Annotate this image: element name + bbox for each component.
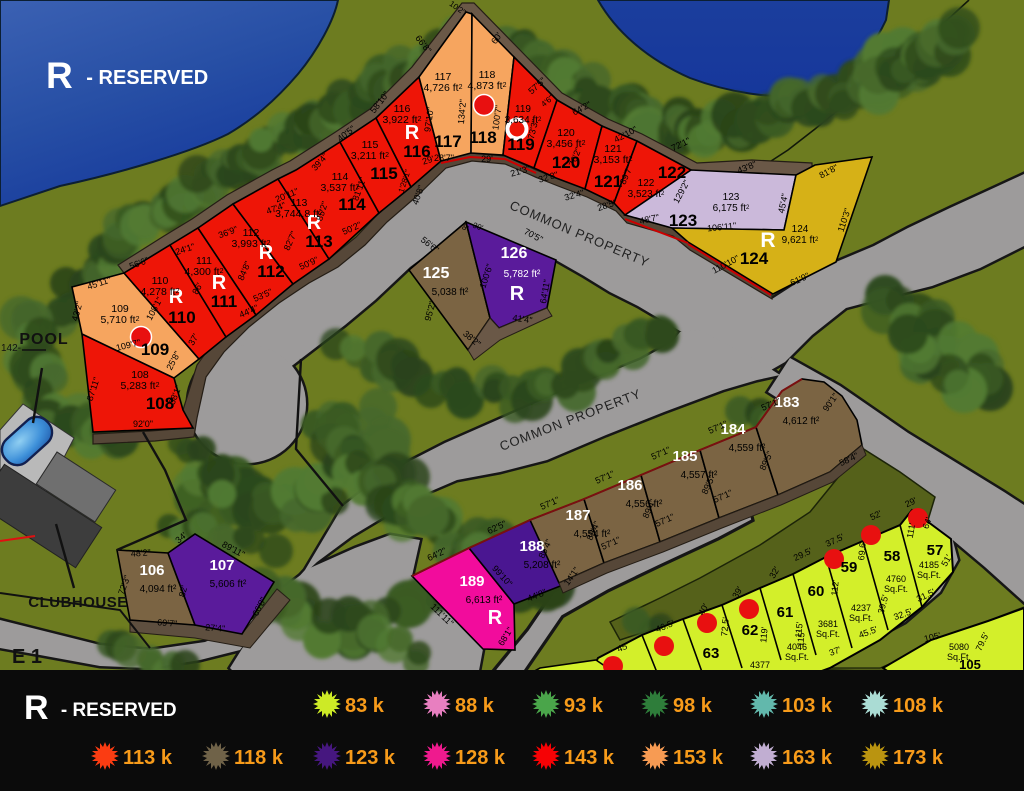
svg-text:117: 117 bbox=[434, 132, 461, 151]
svg-text:142-: 142- bbox=[1, 343, 21, 354]
svg-text:119: 119 bbox=[515, 104, 531, 115]
svg-text:R: R bbox=[488, 607, 503, 629]
svg-text:27'4": 27'4" bbox=[205, 622, 226, 633]
svg-text:5,208 ft²: 5,208 ft² bbox=[524, 560, 561, 571]
svg-text:124: 124 bbox=[740, 249, 769, 268]
svg-text:3,523 ft2: 3,523 ft2 bbox=[628, 189, 665, 200]
svg-text:4185: 4185 bbox=[919, 560, 939, 570]
svg-text:57: 57 bbox=[927, 542, 944, 559]
svg-text:4377: 4377 bbox=[750, 660, 770, 670]
svg-text:3,993 ft2: 3,993 ft2 bbox=[232, 238, 271, 250]
svg-text:92'0": 92'0" bbox=[133, 419, 153, 429]
svg-text:188: 188 bbox=[519, 538, 544, 555]
svg-text:5,283 ft2: 5,283 ft2 bbox=[121, 380, 160, 392]
svg-text:58: 58 bbox=[884, 548, 901, 565]
svg-text:124: 124 bbox=[792, 224, 809, 235]
svg-text:105: 105 bbox=[959, 657, 981, 672]
svg-text:119': 119' bbox=[758, 626, 769, 643]
svg-text:Sq.Ft.: Sq.Ft. bbox=[816, 629, 840, 639]
svg-text:112': 112' bbox=[829, 579, 840, 596]
svg-text:R: R bbox=[510, 283, 525, 305]
svg-text:5,038 ft²: 5,038 ft² bbox=[432, 287, 469, 298]
svg-text:98 k: 98 k bbox=[673, 695, 713, 717]
svg-text:4,094 ft²: 4,094 ft² bbox=[140, 584, 177, 595]
svg-text:103 k: 103 k bbox=[782, 695, 833, 717]
svg-text:72.5': 72.5' bbox=[719, 616, 731, 636]
svg-text:69.6': 69.6' bbox=[856, 540, 868, 560]
svg-text:125: 125 bbox=[423, 265, 450, 282]
svg-text:123 k: 123 k bbox=[345, 747, 396, 769]
svg-text:59: 59 bbox=[841, 559, 858, 576]
svg-text:4237: 4237 bbox=[851, 603, 871, 613]
svg-text:118 k: 118 k bbox=[234, 747, 284, 769]
svg-text:29': 29' bbox=[481, 154, 493, 164]
svg-text:173 k: 173 k bbox=[893, 747, 944, 769]
svg-text:115': 115' bbox=[793, 621, 804, 638]
svg-text:3,922 ft2: 3,922 ft2 bbox=[383, 114, 422, 126]
svg-text:83 k: 83 k bbox=[345, 695, 385, 717]
svg-text:187: 187 bbox=[565, 507, 590, 524]
svg-text:4,278 ft2: 4,278 ft2 bbox=[141, 286, 180, 298]
svg-text:153 k: 153 k bbox=[673, 747, 724, 769]
svg-text:4,300 ft2: 4,300 ft2 bbox=[185, 266, 224, 278]
svg-text:28'7": 28'7" bbox=[434, 153, 454, 163]
svg-text:Sq.Ft.: Sq.Ft. bbox=[785, 652, 809, 662]
svg-text:4,612 ft²: 4,612 ft² bbox=[783, 416, 820, 427]
svg-text:63: 63 bbox=[703, 645, 720, 662]
svg-text:118: 118 bbox=[469, 128, 496, 147]
svg-text:185: 185 bbox=[672, 448, 697, 465]
svg-text:5,782 ft²: 5,782 ft² bbox=[504, 269, 541, 280]
svg-text:110: 110 bbox=[168, 308, 195, 327]
svg-text:88 k: 88 k bbox=[455, 695, 495, 717]
svg-text:4,559 ft²: 4,559 ft² bbox=[729, 443, 766, 454]
svg-text:5,606 ft²: 5,606 ft² bbox=[210, 579, 247, 590]
svg-text:93 k: 93 k bbox=[564, 695, 604, 717]
svg-text:113: 113 bbox=[305, 232, 332, 251]
svg-text:123: 123 bbox=[669, 211, 697, 230]
svg-text:111: 111 bbox=[211, 292, 238, 311]
svg-text:115: 115 bbox=[370, 164, 397, 183]
svg-text:POOL: POOL bbox=[19, 331, 68, 348]
svg-text:E 1: E 1 bbox=[12, 646, 42, 668]
svg-text:6,175 ft2: 6,175 ft2 bbox=[713, 203, 750, 214]
svg-text:122: 122 bbox=[638, 178, 655, 189]
svg-text:143 k: 143 k bbox=[564, 747, 615, 769]
svg-text:186: 186 bbox=[617, 477, 642, 494]
svg-text:5080: 5080 bbox=[949, 642, 969, 652]
svg-text:113 k: 113 k bbox=[123, 747, 173, 769]
svg-text:60: 60 bbox=[808, 583, 825, 600]
svg-text:69'7": 69'7" bbox=[157, 617, 178, 628]
svg-text:107: 107 bbox=[209, 557, 234, 574]
svg-text:Sq.Ft.: Sq.Ft. bbox=[849, 613, 873, 623]
svg-text:123: 123 bbox=[723, 192, 740, 203]
svg-text:126: 126 bbox=[501, 245, 528, 262]
svg-text:62: 62 bbox=[742, 622, 759, 639]
svg-text:4,726 ft2: 4,726 ft2 bbox=[424, 82, 463, 94]
svg-text:4760: 4760 bbox=[886, 574, 906, 584]
svg-text:106: 106 bbox=[139, 562, 164, 579]
svg-text:61: 61 bbox=[777, 604, 794, 621]
svg-text:112: 112 bbox=[257, 262, 284, 281]
svg-text:108 k: 108 k bbox=[893, 695, 944, 717]
svg-text:CLUBHOUSE: CLUBHOUSE bbox=[28, 594, 128, 611]
svg-text:3,211 ft2: 3,211 ft2 bbox=[351, 150, 389, 162]
svg-text:4,873 ft2: 4,873 ft2 bbox=[468, 80, 507, 92]
svg-text:163 k: 163 k bbox=[782, 747, 833, 769]
svg-text:3681: 3681 bbox=[818, 619, 838, 629]
svg-text:5,710 ft2: 5,710 ft2 bbox=[101, 314, 140, 326]
svg-text:Sq.Ft.: Sq.Ft. bbox=[884, 584, 908, 594]
svg-text:48'2": 48'2" bbox=[130, 547, 151, 558]
svg-text:189: 189 bbox=[459, 573, 484, 590]
svg-text:Sq.Ft.: Sq.Ft. bbox=[917, 570, 941, 580]
svg-text:128 k: 128 k bbox=[455, 747, 506, 769]
svg-text:6,613 ft²: 6,613 ft² bbox=[466, 595, 503, 606]
svg-text:9,621 ft2: 9,621 ft2 bbox=[782, 235, 819, 246]
svg-text:109: 109 bbox=[141, 340, 169, 359]
